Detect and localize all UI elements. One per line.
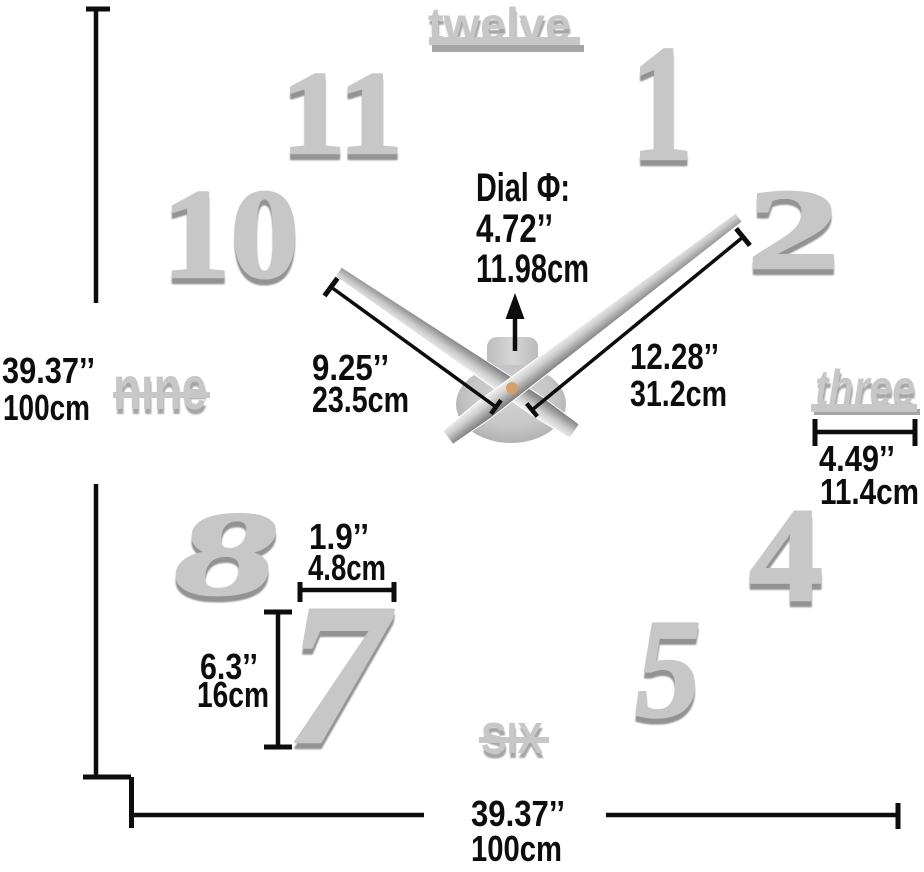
svg-text:8: 8 [174, 487, 277, 620]
svg-text:7: 7 [287, 562, 394, 786]
svg-text:11: 11 [281, 47, 403, 179]
svg-text:10: 10 [162, 163, 299, 305]
svg-text:12.28’’: 12.28’’ [630, 336, 719, 377]
svg-text:16cm: 16cm [197, 674, 269, 715]
svg-text:1: 1 [631, 11, 693, 195]
svg-text:Dial Φ:: Dial Φ: [476, 166, 570, 210]
svg-text:nıne: nıne [113, 354, 207, 422]
svg-text:100cm: 100cm [3, 387, 90, 428]
svg-text:11.4cm: 11.4cm [820, 471, 919, 512]
svg-text:11.98cm: 11.98cm [476, 247, 589, 291]
svg-text:4.72’’: 4.72’’ [476, 207, 553, 251]
svg-text:4.8cm: 4.8cm [308, 547, 386, 588]
svg-text:31.2cm: 31.2cm [630, 373, 727, 414]
svg-text:5: 5 [635, 591, 701, 747]
svg-text:39.37’’: 39.37’’ [2, 350, 95, 391]
svg-text:4: 4 [749, 481, 823, 629]
svg-text:100cm: 100cm [471, 828, 562, 869]
svg-text:23.5cm: 23.5cm [312, 379, 409, 420]
svg-text:2: 2 [747, 166, 840, 293]
